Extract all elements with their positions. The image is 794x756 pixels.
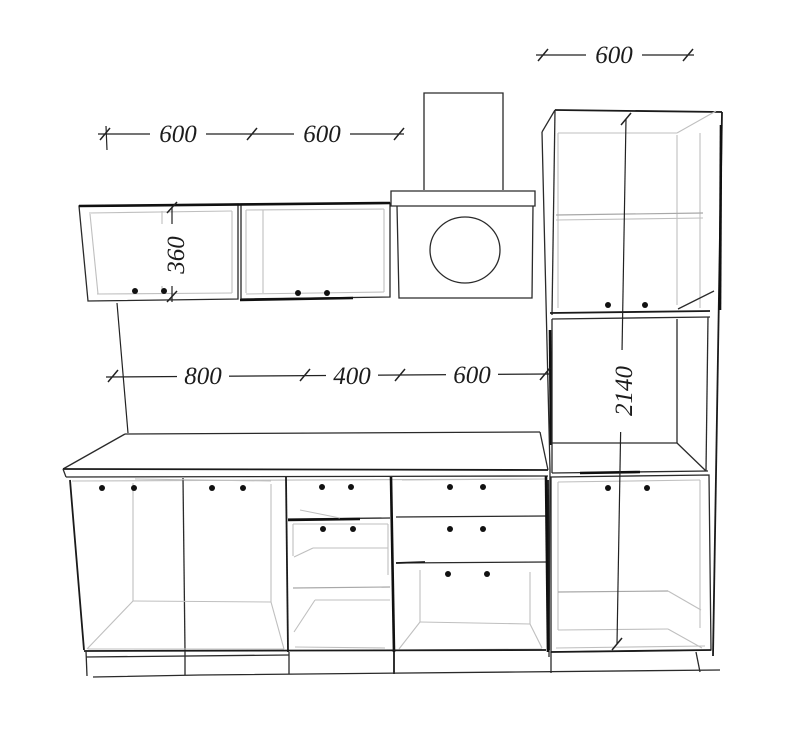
dim-label-wall-height: 360	[163, 236, 190, 275]
floor-line	[93, 670, 720, 677]
wall-cabinet-right	[241, 203, 390, 299]
dim-label-wall-left-width: 600	[159, 121, 197, 148]
countertop	[63, 432, 548, 481]
tall-cabinet-base-section	[551, 475, 711, 652]
drawing-svg: 600 600 600 800 400 600 360	[0, 0, 794, 756]
dim-label-base-600: 600	[453, 362, 491, 389]
dim-label-tall-width: 600	[595, 42, 633, 69]
dimension-tall-cabinet-width: 600	[536, 40, 694, 69]
wall-cabinet-top-edge	[79, 203, 390, 206]
dimension-tall-cabinet-height: 2140	[603, 113, 638, 650]
hood-body	[397, 206, 533, 298]
hood-fan-circle	[430, 217, 500, 283]
handle-dots-tall-base	[605, 485, 650, 491]
handle-dots-base-400	[319, 484, 356, 532]
handle-dots-base-800	[99, 485, 246, 491]
hood-top-band	[391, 191, 535, 206]
range-hood	[391, 93, 535, 298]
hood-chimney	[424, 93, 503, 190]
dimension-wall-cabinet-height: 360	[158, 202, 190, 302]
base-cabinet-800	[70, 477, 288, 652]
dimension-wall-cabinets-width: 600 600	[98, 119, 404, 150]
dimension-base-widths: 800 400 600	[106, 303, 550, 433]
plinth	[84, 650, 711, 676]
kitchen-elevation-drawing: 600 600 600 800 400 600 360	[0, 0, 794, 756]
tall-cabinet-upper-section	[556, 111, 716, 308]
dim-label-base-400: 400	[333, 363, 371, 390]
dim-label-wall-right-width: 600	[303, 121, 341, 148]
base-cabinet-400	[288, 477, 394, 652]
handle-dots-tall-upper	[605, 302, 648, 308]
base-drawer-cabinet-600	[396, 476, 548, 652]
dim-label-tall-height: 2140	[611, 366, 638, 417]
dim-label-base-800: 800	[184, 363, 222, 390]
